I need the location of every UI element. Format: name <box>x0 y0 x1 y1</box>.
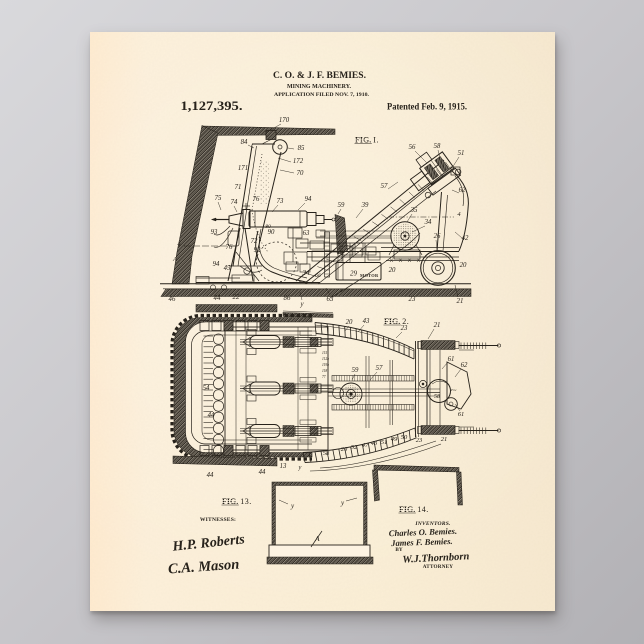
svg-text:43: 43 <box>363 318 370 325</box>
svg-text:77: 77 <box>322 375 326 379</box>
svg-text:20: 20 <box>389 267 396 274</box>
svg-text:118: 118 <box>322 369 327 373</box>
svg-text:44: 44 <box>259 469 266 476</box>
svg-text:58: 58 <box>323 450 330 457</box>
svg-text:57: 57 <box>376 365 383 372</box>
svg-text:FIG.: FIG. <box>355 136 371 145</box>
svg-text:35: 35 <box>410 207 418 214</box>
svg-text:23: 23 <box>416 437 423 444</box>
svg-text:ATTORNEY: ATTORNEY <box>423 564 454 570</box>
svg-text:86: 86 <box>284 295 291 302</box>
svg-text:46: 46 <box>169 296 176 303</box>
svg-text:51: 51 <box>381 439 388 446</box>
svg-text:73: 73 <box>277 198 284 205</box>
svg-text:14.: 14. <box>417 505 429 514</box>
svg-text:20: 20 <box>460 262 467 269</box>
svg-text:26: 26 <box>434 233 441 240</box>
svg-text:y: y <box>298 464 302 471</box>
svg-text:75: 75 <box>215 195 222 202</box>
svg-text:13: 13 <box>280 463 287 470</box>
svg-text:72: 72 <box>251 238 258 245</box>
svg-text:FIG.: FIG. <box>399 505 415 514</box>
svg-text:76: 76 <box>253 196 260 203</box>
svg-text:171: 171 <box>238 165 248 172</box>
svg-text:59: 59 <box>338 202 345 209</box>
svg-text:20: 20 <box>341 446 348 453</box>
svg-text:58: 58 <box>434 394 440 400</box>
svg-text:A: A <box>172 256 177 263</box>
svg-text:Patented Feb. 9, 1915.: Patented Feb. 9, 1915. <box>387 102 467 112</box>
svg-text:C. O. & J. F. BEMIES.: C. O. & J. F. BEMIES. <box>273 70 366 81</box>
svg-text:94: 94 <box>305 196 312 203</box>
svg-text:61: 61 <box>458 411 465 418</box>
svg-text:93: 93 <box>211 229 218 236</box>
svg-text:45: 45 <box>224 265 231 272</box>
svg-text:112b: 112b <box>322 357 329 361</box>
svg-text:44: 44 <box>214 295 221 302</box>
svg-text:21: 21 <box>434 322 441 329</box>
svg-text:58: 58 <box>434 143 441 150</box>
svg-text:I.: I. <box>373 136 379 145</box>
svg-text:47: 47 <box>362 442 369 449</box>
svg-text:70: 70 <box>297 170 304 177</box>
svg-text:FIG.: FIG. <box>222 497 238 506</box>
svg-text:1,127,395.: 1,127,395. <box>181 98 243 113</box>
svg-text:170: 170 <box>279 117 290 124</box>
svg-text:84: 84 <box>241 139 248 146</box>
svg-text:172: 172 <box>293 158 304 165</box>
svg-text:22: 22 <box>233 294 240 301</box>
svg-text:44: 44 <box>208 412 215 419</box>
svg-text:62: 62 <box>459 187 466 194</box>
svg-text:42: 42 <box>462 235 469 242</box>
svg-text:APPLICATION FILED NOV. 7, 1910: APPLICATION FILED NOV. 7, 1910. <box>274 93 370 98</box>
svg-text:Prw: Prw <box>450 388 457 392</box>
svg-text:MINING MACHINERY.: MINING MACHINERY. <box>287 83 351 90</box>
svg-text:76: 76 <box>226 244 233 251</box>
svg-text:43: 43 <box>371 440 378 447</box>
svg-text:61: 61 <box>448 356 455 363</box>
svg-text:23: 23 <box>409 296 416 303</box>
svg-text:50: 50 <box>401 434 408 441</box>
svg-text:85: 85 <box>298 145 305 152</box>
svg-text:39: 39 <box>361 202 369 209</box>
svg-text:71: 71 <box>235 184 242 191</box>
svg-text:74: 74 <box>231 199 238 206</box>
svg-text:23: 23 <box>401 325 408 332</box>
svg-text:63: 63 <box>327 296 334 303</box>
svg-text:115: 115 <box>322 351 327 355</box>
svg-text:21: 21 <box>457 298 464 305</box>
svg-text:34: 34 <box>424 219 432 226</box>
svg-text:13.: 13. <box>240 497 252 506</box>
svg-text:51: 51 <box>458 150 465 157</box>
svg-text:29: 29 <box>350 270 358 278</box>
svg-text:34: 34 <box>302 270 310 277</box>
svg-text:94: 94 <box>213 261 220 268</box>
svg-text:62: 62 <box>461 362 468 369</box>
svg-text:57: 57 <box>381 183 388 190</box>
svg-text:92: 92 <box>254 247 261 254</box>
svg-text:66: 66 <box>315 273 321 279</box>
svg-text:WITNESSES:: WITNESSES: <box>200 517 236 523</box>
svg-text:80: 80 <box>265 224 271 230</box>
svg-text:44: 44 <box>207 472 214 479</box>
svg-text:20: 20 <box>346 319 353 326</box>
svg-text:56: 56 <box>409 144 416 151</box>
svg-text:52: 52 <box>351 444 358 451</box>
svg-text:49: 49 <box>391 436 398 443</box>
svg-text:90: 90 <box>268 229 275 236</box>
svg-text:FIG.: FIG. <box>384 317 400 326</box>
svg-text:54: 54 <box>203 385 210 392</box>
svg-text:119b: 119b <box>322 363 329 367</box>
svg-text:BY: BY <box>395 547 402 553</box>
svg-text:63: 63 <box>303 230 310 237</box>
svg-text:21: 21 <box>441 436 448 443</box>
svg-text:59: 59 <box>352 367 359 374</box>
